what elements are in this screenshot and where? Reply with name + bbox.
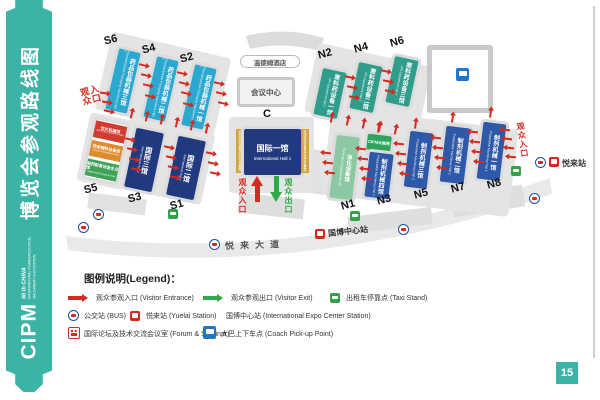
legend-title: 图例说明(Legend)：: [84, 271, 181, 286]
legend-exit-label: 观众参观出口 (Visitor Exit): [231, 293, 313, 303]
bus-stop-icon: [529, 193, 540, 204]
page-number: 15: [556, 362, 578, 384]
legend-expo-label: 国博中心站 (International Expo Center Station…: [226, 311, 371, 321]
conference-center-building: 会议中心: [237, 77, 295, 107]
hall-c: 国际一馆 International Hall 1: [244, 129, 301, 175]
coach-pickup-icon: [203, 326, 216, 339]
taxi-stand-icon: [511, 166, 521, 176]
hall-c-left-strip: 检测检验设备及实验室装备馆: [236, 129, 244, 173]
hotel-label: 温德姆酒店: [254, 57, 287, 67]
metro-station-icon: [549, 157, 559, 167]
center-entrance-label: 观众入口: [238, 178, 246, 214]
exit-arrow-icon: [270, 176, 282, 202]
visitor-exit-arrow-icon: [203, 296, 218, 300]
hall-n3-cap: CIPM大咖秀: [366, 134, 392, 153]
conference-label: 会议中心: [251, 87, 281, 98]
legend-bus-label: 公交站 (BUS): [84, 311, 126, 321]
taxi-stand-icon: [330, 293, 340, 303]
road-label: 悦来大道: [225, 237, 285, 252]
legend-coach-label: 大巴上下车点 (Coach Pick-up Point): [221, 329, 333, 339]
taxi-stand-icon: [350, 211, 360, 221]
bus-stop-icon: [68, 310, 79, 321]
legend-taxi-label: 出租车停靠点 (Taxi Stand): [346, 293, 427, 303]
north-building: [427, 45, 493, 113]
bus-stop-icon: [398, 224, 409, 235]
taxi-stand-icon: [168, 209, 178, 219]
legend-entrance-label: 观众参观入口 (Visitor Entrance): [96, 293, 194, 303]
page-divider-line: [593, 6, 595, 358]
bus-stop-icon: [78, 222, 89, 233]
bus-stop-icon: [209, 239, 220, 250]
entrance-arrow-icon: [251, 176, 263, 202]
bus-stop-icon: [93, 209, 104, 220]
legend-yuelai-label: 悦来站 (Yuelai Station): [146, 311, 216, 321]
forum-icon: [68, 327, 80, 339]
hotel-building: 温德姆酒店: [240, 55, 300, 68]
expo-map: 温德姆酒店 会议中心 S6 Pharmaceutical Packaging M…: [0, 0, 600, 400]
center-exit-label: 观众出口: [284, 178, 292, 214]
yuelai-station-label: 悦来站: [562, 158, 586, 169]
hall-c-code: C: [263, 108, 271, 120]
metro-station-icon: [315, 229, 325, 239]
brochure-page: 博览会参观路线图 CIPM 66 th CHINA INTERNATIONAL …: [0, 0, 600, 400]
metro-station-icon: [130, 311, 140, 321]
visitor-entrance-arrow-icon: [68, 296, 83, 300]
hall-c-right-strip: 检测检验设备及实验室装备馆: [301, 129, 309, 173]
coach-pickup-icon: [456, 68, 469, 81]
bus-stop-icon: [535, 157, 546, 168]
